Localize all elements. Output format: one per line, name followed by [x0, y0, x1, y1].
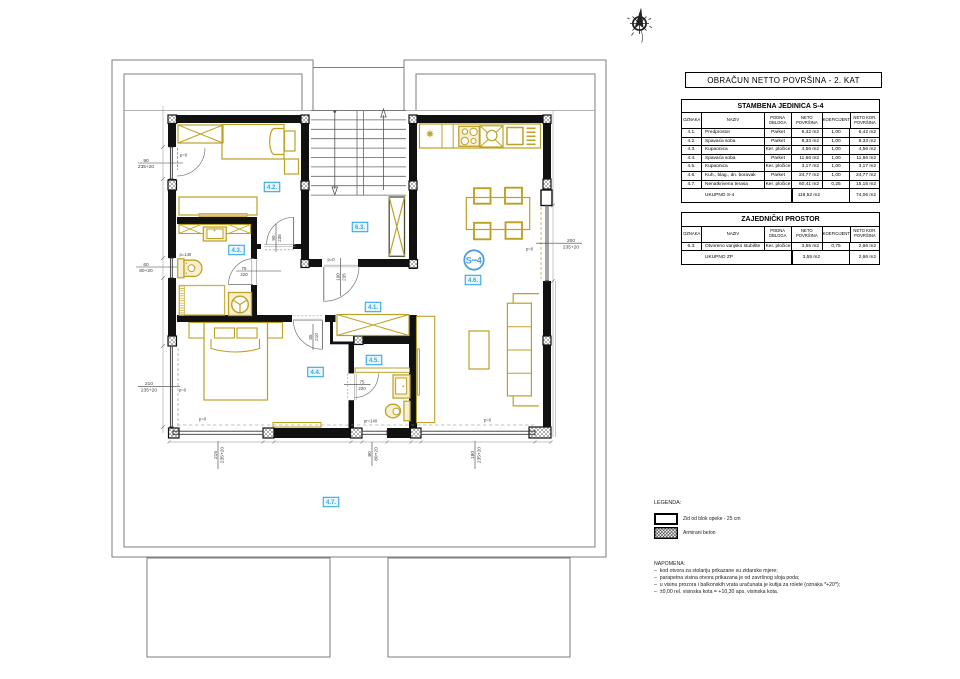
svg-text:p=0: p=0: [526, 247, 534, 252]
svg-text:pr=140: pr=140: [364, 419, 378, 424]
svg-text:S: S: [466, 256, 472, 266]
svg-text:235+20: 235+20: [141, 388, 157, 394]
svg-text:80: 80: [367, 451, 373, 457]
svg-text:220: 220: [358, 386, 366, 391]
svg-text:75: 75: [360, 380, 365, 385]
svg-text:80+20: 80+20: [373, 447, 379, 461]
svg-text:4.2.: 4.2.: [267, 185, 277, 191]
svg-text:180: 180: [470, 451, 476, 459]
svg-text:210: 210: [314, 333, 319, 341]
svg-text:4.6.: 4.6.: [468, 278, 478, 284]
svg-text:75: 75: [242, 266, 247, 271]
svg-text:4.7.: 4.7.: [326, 500, 336, 506]
svg-text:235+20: 235+20: [563, 244, 579, 250]
svg-text:p=140: p=140: [180, 252, 192, 257]
svg-text:4.4.: 4.4.: [310, 370, 320, 376]
svg-text:4: 4: [477, 256, 482, 266]
svg-text:90: 90: [271, 235, 276, 241]
svg-text:p=0: p=0: [180, 153, 188, 158]
svg-text:4.1.: 4.1.: [368, 305, 378, 311]
svg-text:p=0: p=0: [484, 418, 492, 423]
svg-text:235+20: 235+20: [219, 447, 225, 463]
svg-text:4.5.: 4.5.: [369, 358, 379, 364]
svg-text:6.3.: 6.3.: [355, 225, 365, 231]
svg-text:235: 235: [342, 273, 347, 281]
svg-text:220: 220: [240, 272, 248, 277]
svg-text:4.3.: 4.3.: [231, 248, 241, 254]
svg-text:235+20: 235+20: [476, 447, 482, 463]
svg-text:p=0: p=0: [179, 388, 187, 393]
svg-text:90: 90: [143, 158, 149, 164]
svg-text:235+20: 235+20: [138, 164, 154, 170]
svg-text:80+20: 80+20: [139, 268, 153, 274]
svg-text:235: 235: [277, 234, 282, 242]
svg-text:210: 210: [145, 381, 153, 387]
svg-text:215: 215: [213, 451, 219, 459]
svg-text:100: 100: [335, 273, 340, 281]
svg-text:p=0: p=0: [199, 417, 207, 422]
svg-text:200: 200: [567, 238, 575, 244]
svg-text:60: 60: [143, 262, 149, 268]
svg-text:85: 85: [308, 334, 313, 340]
svg-text:p=0: p=0: [328, 257, 336, 262]
